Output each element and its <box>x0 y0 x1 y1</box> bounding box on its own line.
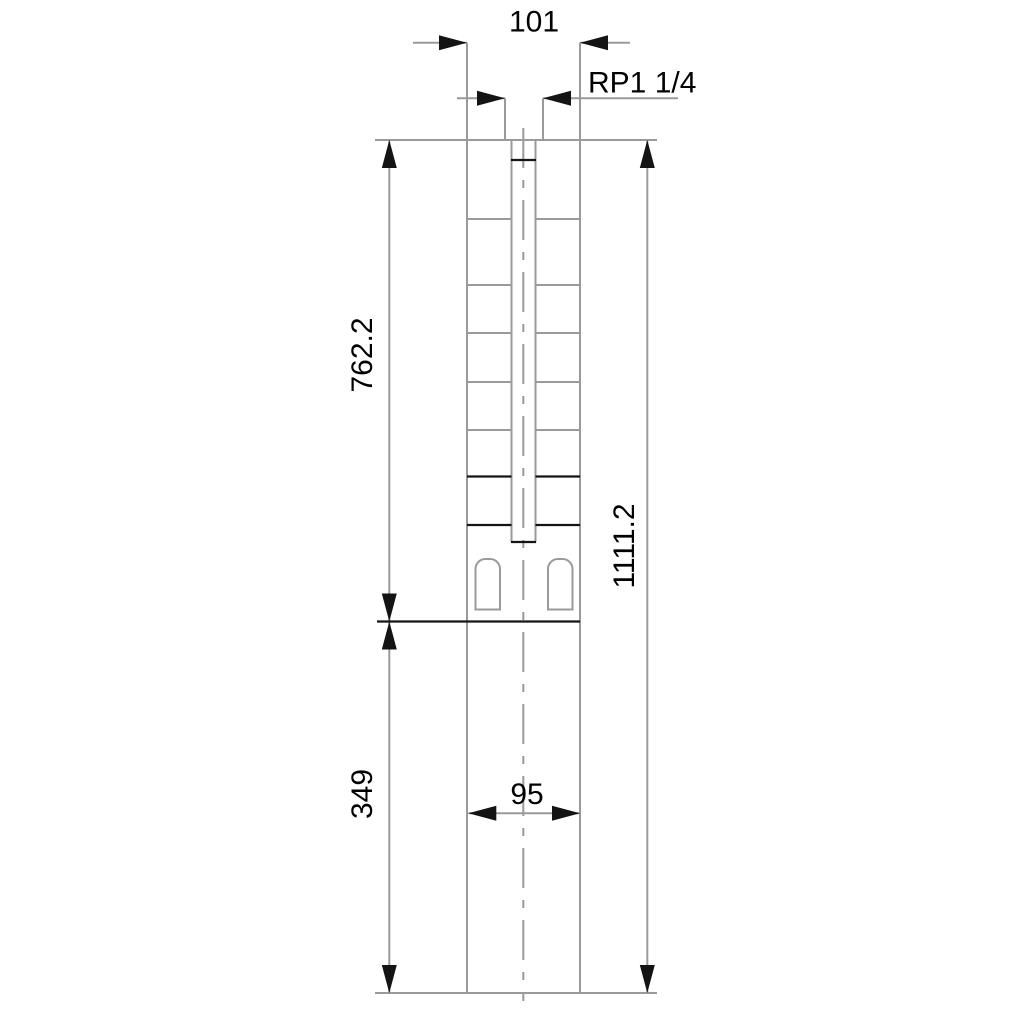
dim-label-lower-section-length: 349 <box>346 769 379 819</box>
dim-label-top-width: 101 <box>509 6 559 39</box>
pump-drawing-svg: 101 RP1 1/4 762.2 349 1111.2 95 <box>0 0 1024 1024</box>
dim-label-lower-width: 95 <box>510 778 543 811</box>
dim-label-thread-size: RP1 1/4 <box>588 67 696 100</box>
pump-dimensional-drawing: 101 RP1 1/4 762.2 349 1111.2 95 <box>0 0 1024 1024</box>
dim-label-total-length: 1111.2 <box>608 503 641 588</box>
dim-label-upper-section-length: 762.2 <box>346 317 379 392</box>
